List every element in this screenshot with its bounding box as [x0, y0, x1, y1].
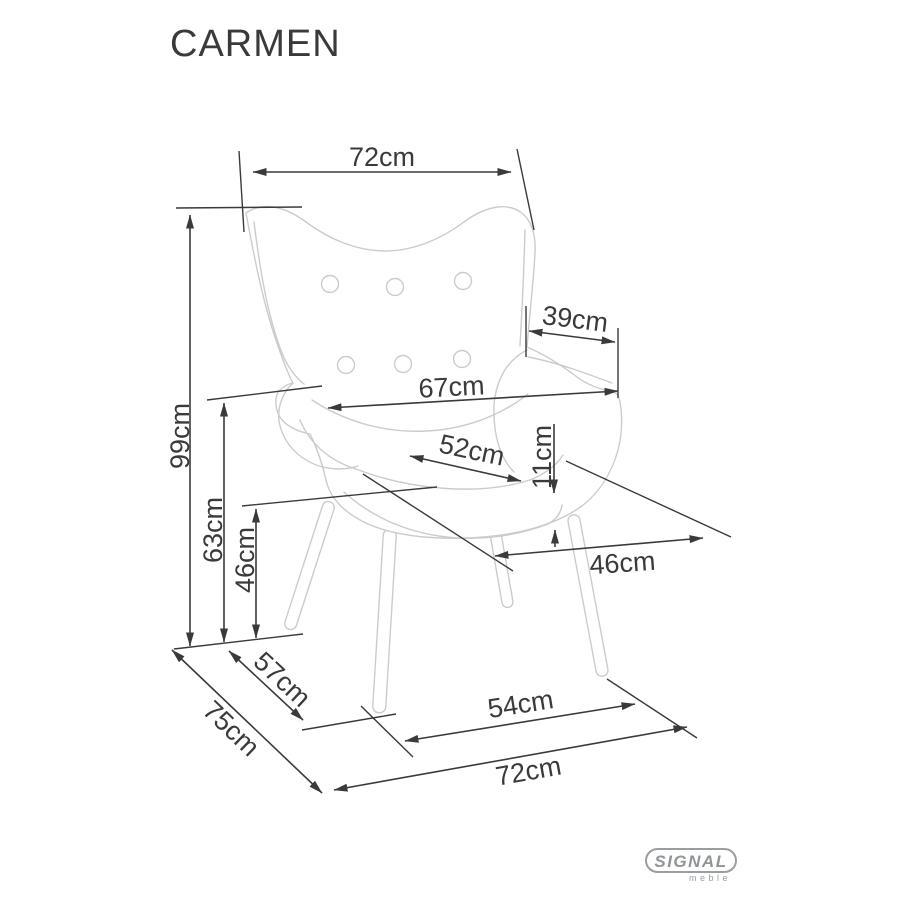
brand-logo: SIGNAL meble	[646, 849, 736, 883]
chair-sketch	[246, 207, 622, 714]
dimension-label-seat-height: 46cm	[230, 527, 260, 593]
dimension-side-span: 57cm	[229, 646, 396, 730]
dimension-label-top-width: 72cm	[349, 142, 415, 172]
diagram-svg: CARMEN	[0, 0, 900, 900]
dimension-overall-depth: 75cm	[172, 650, 322, 793]
page-title: CARMEN	[170, 23, 341, 65]
logo-sub-text: meble	[689, 873, 731, 883]
dimension-diagram: CARMEN	[0, 0, 900, 900]
dimension-label-wing-depth: 39cm	[540, 300, 609, 338]
logo-brand-text: SIGNAL	[654, 852, 727, 871]
dimension-label-side-span: 57cm	[248, 646, 317, 713]
dimension-front-leg-span: 54cm	[361, 684, 635, 757]
dimension-label-armrest-height: 63cm	[198, 497, 228, 563]
dimension-label-overall-height: 99cm	[165, 403, 195, 469]
dimension-label-backrest-width: 67cm	[418, 370, 486, 403]
chair-leg-front-right	[567, 514, 609, 677]
dimension-label-base-width: 72cm	[493, 751, 563, 792]
chair-leg-back-left	[283, 500, 336, 631]
dimension-label-seat-depth: 46cm	[588, 546, 656, 581]
dimension-label-cushion-thickness: 11cm	[527, 425, 557, 489]
chair-leg-front-left	[372, 529, 396, 713]
floor-reference-line	[174, 634, 303, 649]
